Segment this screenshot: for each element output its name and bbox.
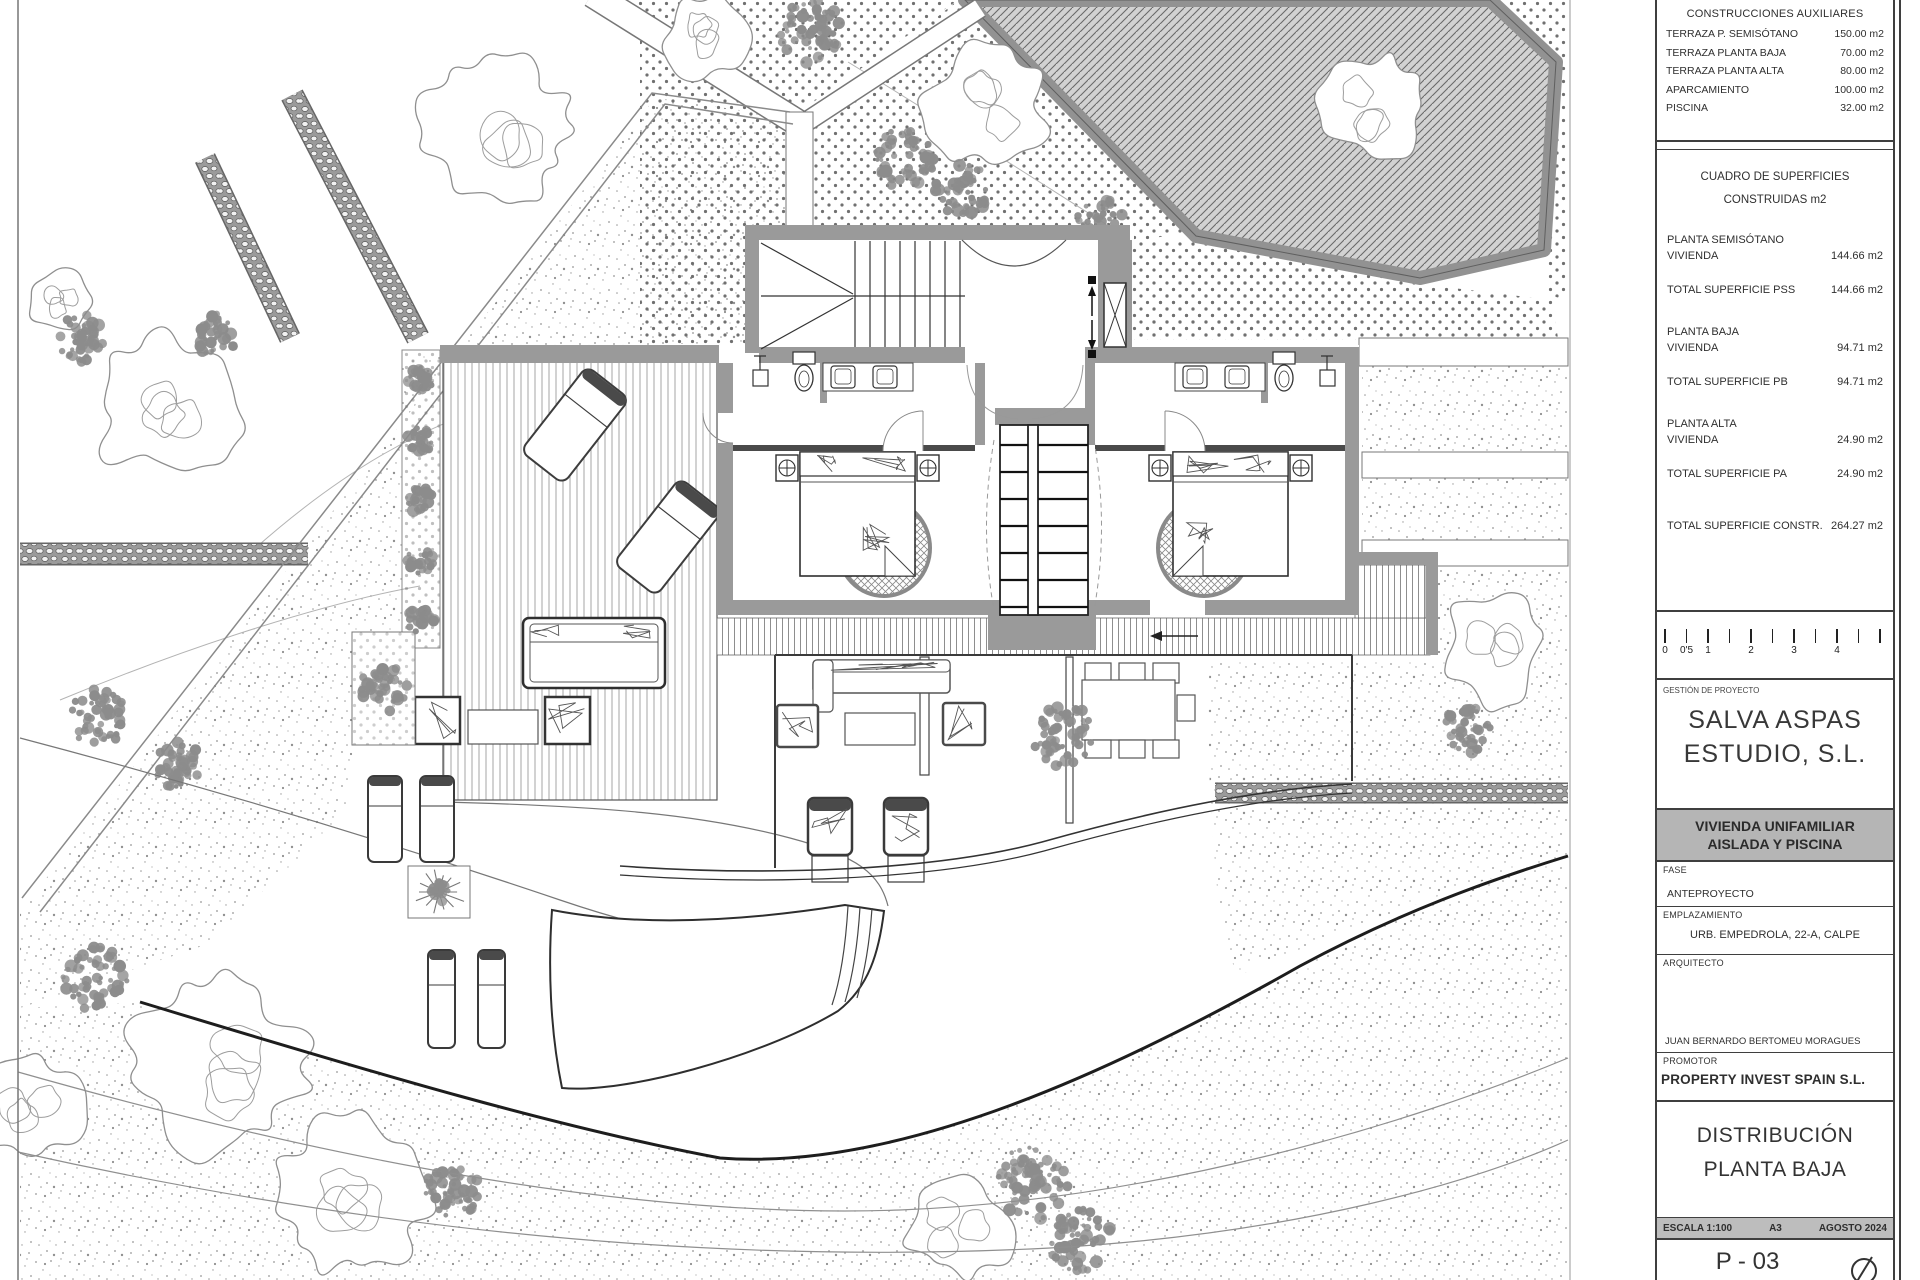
project-title-header: VIVIENDA UNIFAMILIAR AISLADA Y PISCINA — [1657, 810, 1893, 862]
terrace-band — [1362, 452, 1568, 478]
armchair — [777, 705, 818, 747]
sheet-date: AGOSTO 2024 — [1819, 1223, 1887, 1234]
surface-row-value: 144.66 m2 — [1831, 248, 1883, 264]
aux-row: TERRAZA PLANTA BAJA70.00 m2 — [1657, 44, 1893, 63]
studio-name-line2: ESTUDIO, S.L. — [1657, 740, 1893, 769]
surface-row: TOTAL SUPERFICIE PSS144.66 m2 — [1657, 282, 1893, 298]
bed-right — [1149, 452, 1312, 576]
aux-row: TERRAZA PLANTA ALTA80.00 m2 — [1657, 62, 1893, 81]
coffee-table — [845, 713, 915, 745]
developer-label: PROMOTOR — [1663, 1056, 1717, 1066]
paper-format: A3 — [1769, 1223, 1782, 1234]
bush — [69, 685, 126, 747]
deck-side-table — [468, 710, 538, 744]
aux-row-label: TERRAZA P. SEMISÓTANO — [1666, 25, 1798, 44]
surface-row: VIVIENDA94.71 m2 — [1657, 340, 1893, 356]
developer-box: PROMOTOR PROPERTY INVEST SPAIN S.L. — [1657, 1053, 1893, 1102]
surface-row-value: 24.90 m2 — [1837, 432, 1883, 448]
surface-row: PLANTA SEMISÓTANO — [1657, 232, 1893, 248]
surface-row: TOTAL SUPERFICIE CONSTR.264.27 m2 — [1657, 518, 1893, 534]
surface-row-label: VIVIENDA — [1667, 248, 1718, 264]
scale-tick — [1793, 629, 1795, 643]
north-arrow-icon — [1847, 1254, 1881, 1280]
scale-label: 1 — [1705, 645, 1711, 656]
title-block: CONSTRUCCIONES AUXILIARES TERRAZA P. SEM… — [1655, 0, 1895, 1280]
surface-row: TOTAL SUPERFICIE PB94.71 m2 — [1657, 374, 1893, 390]
phase-label: FASE — [1663, 865, 1687, 875]
surface-row-label: TOTAL SUPERFICIE PSS — [1667, 282, 1795, 298]
surface-row: PLANTA ALTA — [1657, 416, 1893, 432]
aux-row-label: TERRAZA PLANTA BAJA — [1666, 44, 1786, 63]
scale-tick — [1686, 629, 1688, 643]
surfaces-subtitle: CONSTRUIDAS m2 — [1657, 194, 1893, 206]
deck-sofa — [523, 618, 665, 688]
staircase-central — [987, 425, 1102, 615]
scale-tick — [1664, 629, 1666, 643]
surface-row: PLANTA BAJA — [1657, 324, 1893, 340]
studio-name-line1: SALVA ASPAS — [1657, 706, 1893, 735]
tree — [415, 53, 574, 203]
surface-row-label: VIVIENDA — [1667, 432, 1718, 448]
architect-value: JUAN BERNARDO BERTOMEU MORAGUES — [1665, 1036, 1860, 1047]
scale-label: 0'5 — [1680, 645, 1693, 656]
surfaces-rows: PLANTA SEMISÓTANOVIVIENDA144.66 m2TOTAL … — [1657, 232, 1893, 534]
surfaces-title: CUADRO DE SUPERFICIES — [1657, 171, 1893, 183]
project-management-box: GESTIÓN DE PROYECTO SALVA ASPAS ESTUDIO,… — [1657, 680, 1893, 810]
surface-row-label: TOTAL SUPERFICIE CONSTR. — [1667, 518, 1823, 534]
scale-label: 4 — [1834, 645, 1840, 656]
scale-tick — [1815, 629, 1817, 643]
management-label: GESTIÓN DE PROYECTO — [1663, 686, 1759, 695]
surface-row-label: PLANTA ALTA — [1667, 416, 1737, 432]
bush — [195, 310, 238, 357]
aux-row: TERRAZA P. SEMISÓTANO150.00 m2 — [1657, 25, 1893, 44]
aux-row-value: 150.00 m2 — [1834, 25, 1884, 44]
scale-tick — [1858, 629, 1860, 643]
graphic-scale-bar: 00'51234 — [1657, 612, 1893, 680]
aux-row-value: 100.00 m2 — [1834, 81, 1884, 100]
scale-tick — [1750, 629, 1752, 643]
scale-ticks: 00'51234 — [1664, 612, 1886, 678]
aux-row: APARCAMIENTO100.00 m2 — [1657, 81, 1893, 100]
aux-table-rows: TERRAZA P. SEMISÓTANO150.00 m2TERRAZA PL… — [1657, 25, 1893, 118]
aux-row-value: 80.00 m2 — [1840, 62, 1884, 81]
aux-row-label: PISCINA — [1666, 99, 1708, 118]
scale-tick — [1879, 629, 1881, 643]
drawing-title-box: DISTRIBUCIÓN PLANTA BAJA — [1657, 1102, 1893, 1218]
site-plan-drawing — [0, 0, 1655, 1280]
rear-door-opening — [1150, 600, 1205, 615]
sheet-number-box: P - 03 — [1657, 1240, 1893, 1280]
location-label: EMPLAZAMIENTO — [1663, 910, 1742, 920]
aux-row-value: 32.00 m2 — [1840, 99, 1884, 118]
bed-left — [776, 452, 939, 576]
tree — [30, 268, 93, 330]
aux-row-value: 70.00 m2 — [1840, 44, 1884, 63]
surface-row-value: 94.71 m2 — [1837, 374, 1883, 390]
dining-set — [1082, 663, 1195, 758]
surface-row-label: TOTAL SUPERFICIE PB — [1667, 374, 1788, 390]
aux-table-title: CONSTRUCCIONES AUXILIARES — [1657, 8, 1893, 20]
surface-row-label: PLANTA SEMISÓTANO — [1667, 232, 1784, 248]
surface-row-value: 264.27 m2 — [1831, 518, 1883, 534]
wooden-deck-terrace — [402, 345, 733, 800]
surface-row-value: 94.71 m2 — [1837, 340, 1883, 356]
scale-label: 0 — [1662, 645, 1668, 656]
surface-row-label: TOTAL SUPERFICIE PA — [1667, 466, 1787, 482]
project-title-line2: AISLADA Y PISCINA — [1657, 835, 1893, 853]
scale-tick — [1836, 629, 1838, 643]
location-value: URB. EMPEDROLA, 22-A, CALPE — [1657, 929, 1893, 941]
aux-row-label: TERRAZA PLANTA ALTA — [1666, 62, 1784, 81]
plan-sheet: CONSTRUCCIONES AUXILIARES TERRAZA P. SEM… — [0, 0, 1920, 1280]
scale-value: ESCALA 1:100 — [1663, 1223, 1732, 1234]
surface-row-label: PLANTA BAJA — [1667, 324, 1739, 340]
project-title-line1: VIVIENDA UNIFAMILIAR — [1657, 817, 1893, 835]
sheet-meta-bar: ESCALA 1:100 A3 AGOSTO 2024 — [1657, 1218, 1893, 1240]
scale-label: 3 — [1791, 645, 1797, 656]
scale-label: 2 — [1748, 645, 1754, 656]
surface-row: TOTAL SUPERFICIE PA24.90 m2 — [1657, 466, 1893, 482]
site-location-box: EMPLAZAMIENTO URB. EMPEDROLA, 22-A, CALP… — [1657, 907, 1893, 955]
aux-row-label: APARCAMIENTO — [1666, 81, 1749, 100]
aux-row: PISCINA32.00 m2 — [1657, 99, 1893, 118]
surface-row-value: 24.90 m2 — [1837, 466, 1883, 482]
phase-box: FASE ANTEPROYECTO — [1657, 862, 1893, 907]
surface-row: VIVIENDA24.90 m2 — [1657, 432, 1893, 448]
drawing-title-line2: PLANTA BAJA — [1657, 1158, 1893, 1182]
architect-box: ARQUITECTO JUAN BERNARDO BERTOMEU MORAGU… — [1657, 955, 1893, 1053]
architect-label: ARQUITECTO — [1663, 958, 1724, 968]
surface-row-value: 144.66 m2 — [1831, 282, 1883, 298]
scale-tick — [1707, 629, 1709, 643]
bush — [1031, 701, 1095, 771]
surface-row: VIVIENDA144.66 m2 — [1657, 248, 1893, 264]
surfaces-table: CUADRO DE SUPERFICIES CONSTRUIDAS m2 PLA… — [1657, 151, 1893, 612]
phase-value: ANTEPROYECTO — [1667, 888, 1754, 900]
sheet-number: P - 03 — [1657, 1248, 1838, 1276]
scale-tick — [1772, 629, 1774, 643]
surface-row-label: VIVIENDA — [1667, 340, 1718, 356]
scale-tick — [1729, 629, 1731, 643]
drawing-title-line1: DISTRIBUCIÓN — [1657, 1124, 1893, 1148]
developer-value: PROPERTY INVEST SPAIN S.L. — [1661, 1072, 1865, 1087]
auxiliary-constructions-table: CONSTRUCCIONES AUXILIARES TERRAZA P. SEM… — [1657, 0, 1893, 142]
